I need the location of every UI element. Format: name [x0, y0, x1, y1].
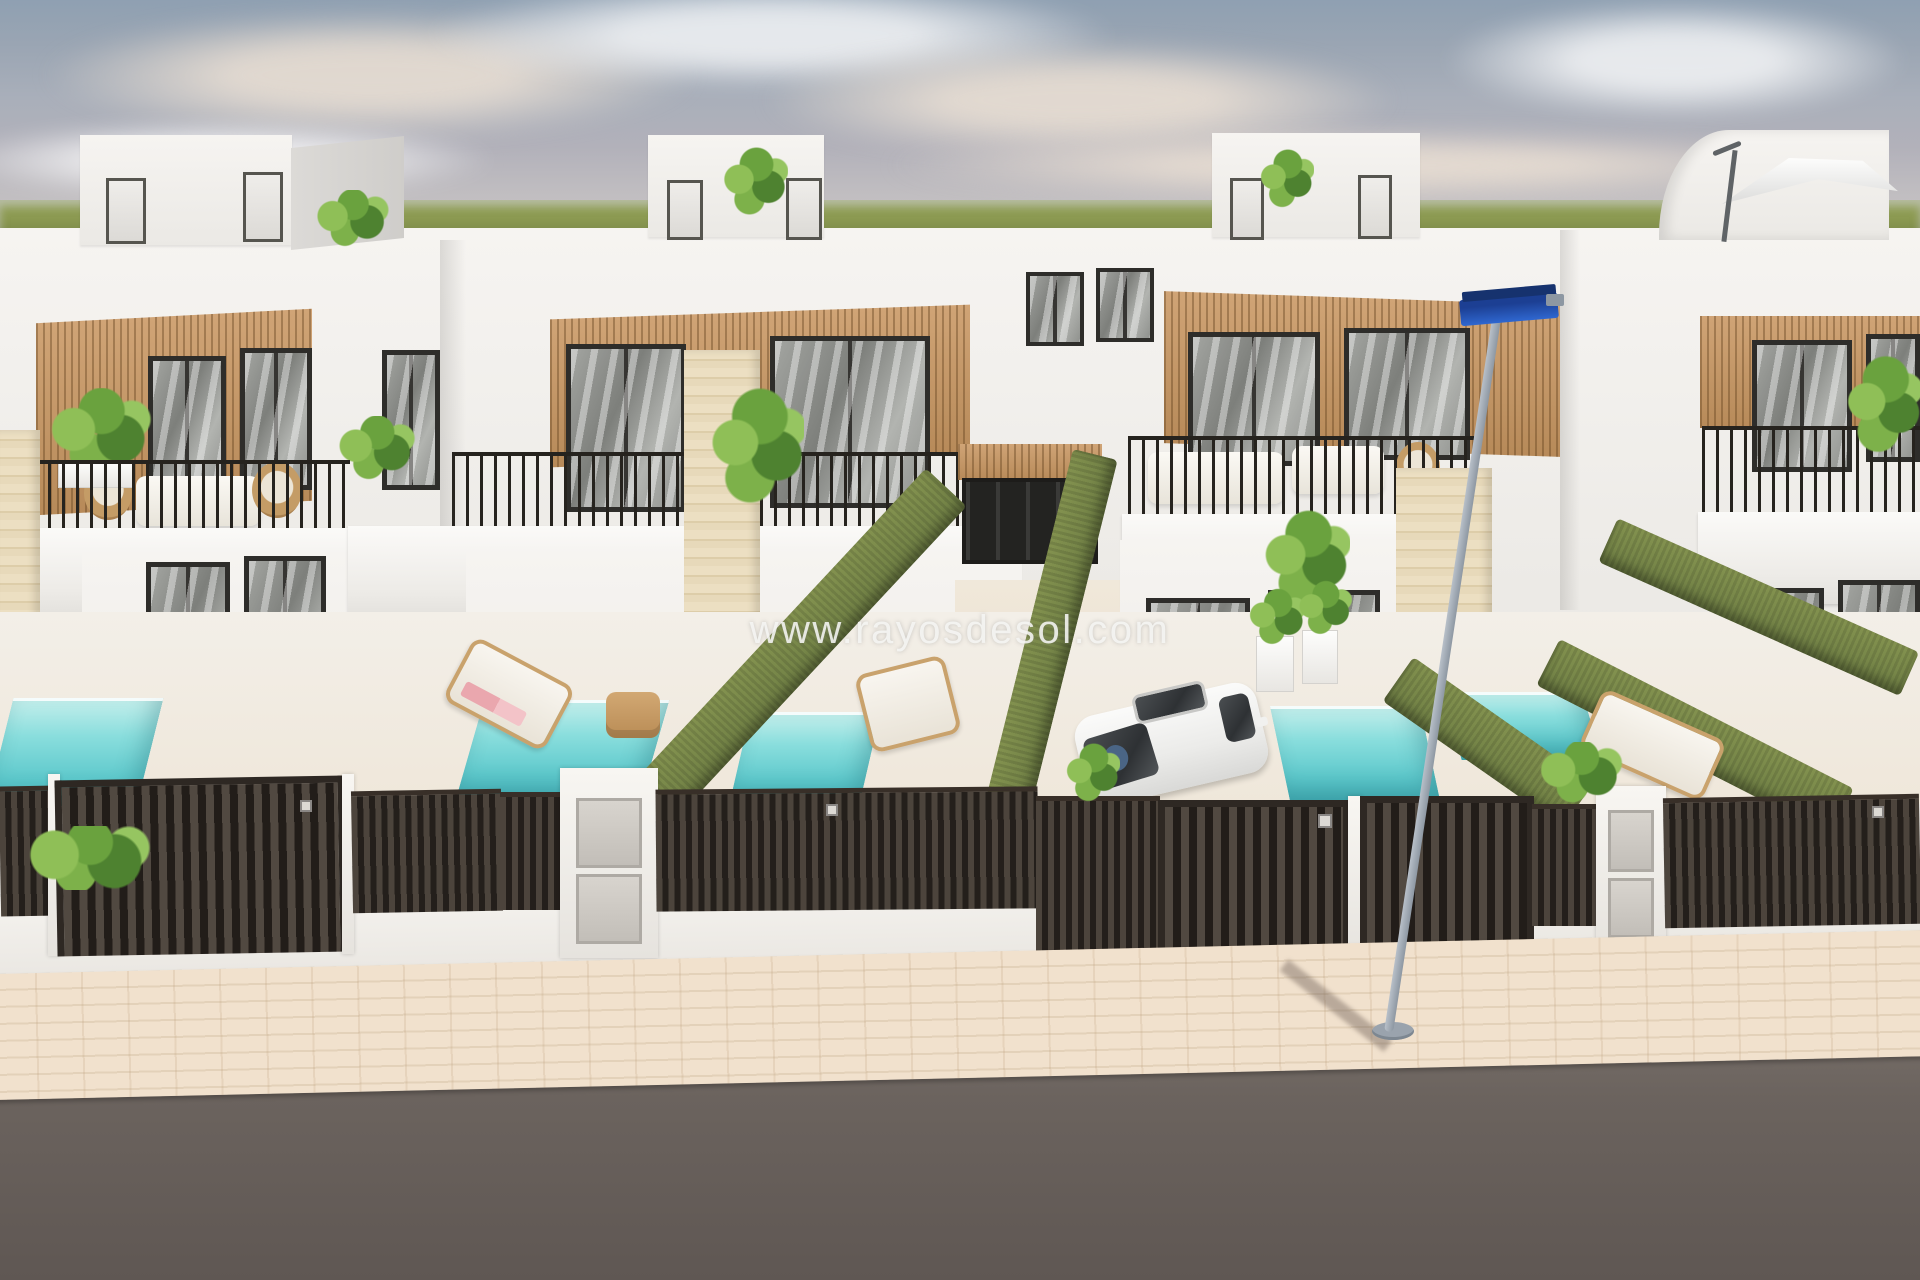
stair-window — [1026, 272, 1084, 346]
slatted-fence — [500, 792, 564, 910]
architectural-render-scene: www.rayosdesol.com — [0, 0, 1920, 1280]
garden-shrub — [12, 826, 154, 890]
garden-shrub — [1530, 742, 1624, 804]
roof-plant — [308, 190, 390, 248]
roof-access-door — [1358, 175, 1392, 239]
side-table — [606, 692, 660, 738]
gate-lock — [1872, 806, 1884, 818]
letterbox-panel — [1608, 878, 1654, 938]
yucca-plant — [706, 384, 804, 514]
garden-shrub — [1062, 742, 1120, 806]
slatted-fence — [1036, 796, 1160, 956]
lamp-bracket — [1546, 294, 1564, 306]
balcony-plant — [1844, 352, 1920, 462]
slatted-fence — [351, 789, 503, 914]
cloud — [1440, 0, 1910, 120]
gate-lock — [300, 800, 312, 812]
roof-plant — [718, 146, 788, 220]
gate-lock — [1318, 814, 1332, 828]
roof-plant — [1256, 148, 1314, 212]
roof-access-door — [106, 178, 146, 244]
terrace-railing — [6, 460, 350, 534]
slatted-fence — [655, 786, 1038, 911]
stair-window — [1096, 268, 1154, 342]
roof-access-door — [667, 180, 703, 240]
roof-access-door — [243, 172, 283, 242]
gate-lock — [826, 804, 838, 816]
letterbox-panel — [576, 798, 642, 868]
letterbox-panel — [576, 874, 642, 944]
slatted-fence — [1532, 804, 1600, 926]
watermark: www.rayosdesol.com — [0, 608, 1920, 668]
car-mirror — [1255, 716, 1269, 727]
wall-corner-shadow — [1560, 230, 1580, 610]
roof-access-door — [786, 178, 822, 240]
letterbox-panel — [1608, 810, 1654, 872]
